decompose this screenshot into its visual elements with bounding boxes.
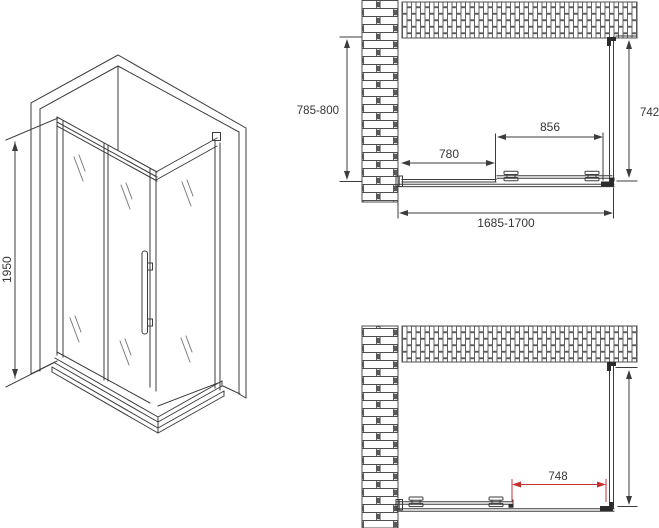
- dim-height-arrow-down: [12, 369, 18, 378]
- glass-and-track-lines-2: [397, 500, 614, 511]
- glass-reflection-marks: [70, 155, 193, 365]
- plan-top: 785-800 742 780 856 1685-1700: [297, 0, 659, 230]
- door-handle: [142, 251, 153, 334]
- dim-opening-arrow-left: [512, 482, 521, 488]
- tray-lines: [31, 352, 240, 433]
- fixed-side-panel-2: [607, 362, 616, 508]
- base-tray: [31, 352, 240, 433]
- door-end-stop: [509, 504, 514, 508]
- brick-wall-left-2: [362, 326, 398, 528]
- brick-wall-top-2: [402, 326, 637, 362]
- brick-wall-left: [362, 0, 398, 202]
- dim-height-arrow-up: [12, 142, 18, 151]
- dim-inner-depth: 742: [616, 36, 659, 181]
- dim-inner-depth-label: 742: [640, 107, 659, 119]
- dim-fixed-panel: 780: [401, 147, 495, 166]
- slide-rail: [396, 134, 615, 187]
- dim-height-label: 1950: [0, 256, 14, 283]
- shower-enclosure-technical-drawing: 1950: [0, 0, 659, 528]
- handle-bar: [142, 251, 148, 334]
- dim-height-extensions: [6, 118, 58, 387]
- iso-view: 1950: [0, 55, 246, 433]
- reflection-lines: [70, 155, 193, 365]
- dim-opening: 748: [512, 471, 606, 502]
- dim-total-width: 1685-1700: [398, 188, 614, 230]
- side-panel: [156, 133, 221, 407]
- side-panel-plan-lines: [610, 37, 614, 182]
- dim-inner-depth-2: [616, 368, 637, 507]
- side-panel-lines: [156, 138, 220, 406]
- page: { "colors": { "line": "#3c3c3c", "red": …: [0, 0, 659, 528]
- slide-rail-2: [396, 497, 614, 511]
- glass-and-track-lines: [398, 134, 614, 187]
- fixed-side-panel: [607, 37, 616, 182]
- plan-bottom: 748: [362, 326, 637, 528]
- dim-height: 1950: [0, 118, 58, 387]
- rail-end-bracket-2: [600, 502, 614, 511]
- brick-wall-top: [402, 2, 637, 38]
- dim-opening-label: 748: [548, 471, 567, 483]
- side-panel-plan-lines-2: [610, 362, 614, 508]
- dim-fixed-panel-label: 780: [439, 147, 459, 161]
- dim-depth-label: 785-800: [297, 105, 339, 117]
- dim-opening-arrow-right: [597, 482, 606, 488]
- dim-total-width-label: 1685-1700: [477, 216, 535, 230]
- wall-bracket-top: [607, 37, 616, 46]
- wall-bracket-top-2: [607, 362, 616, 371]
- dim-depth: 785-800: [297, 37, 362, 182]
- dim-door-label: 856: [540, 120, 560, 134]
